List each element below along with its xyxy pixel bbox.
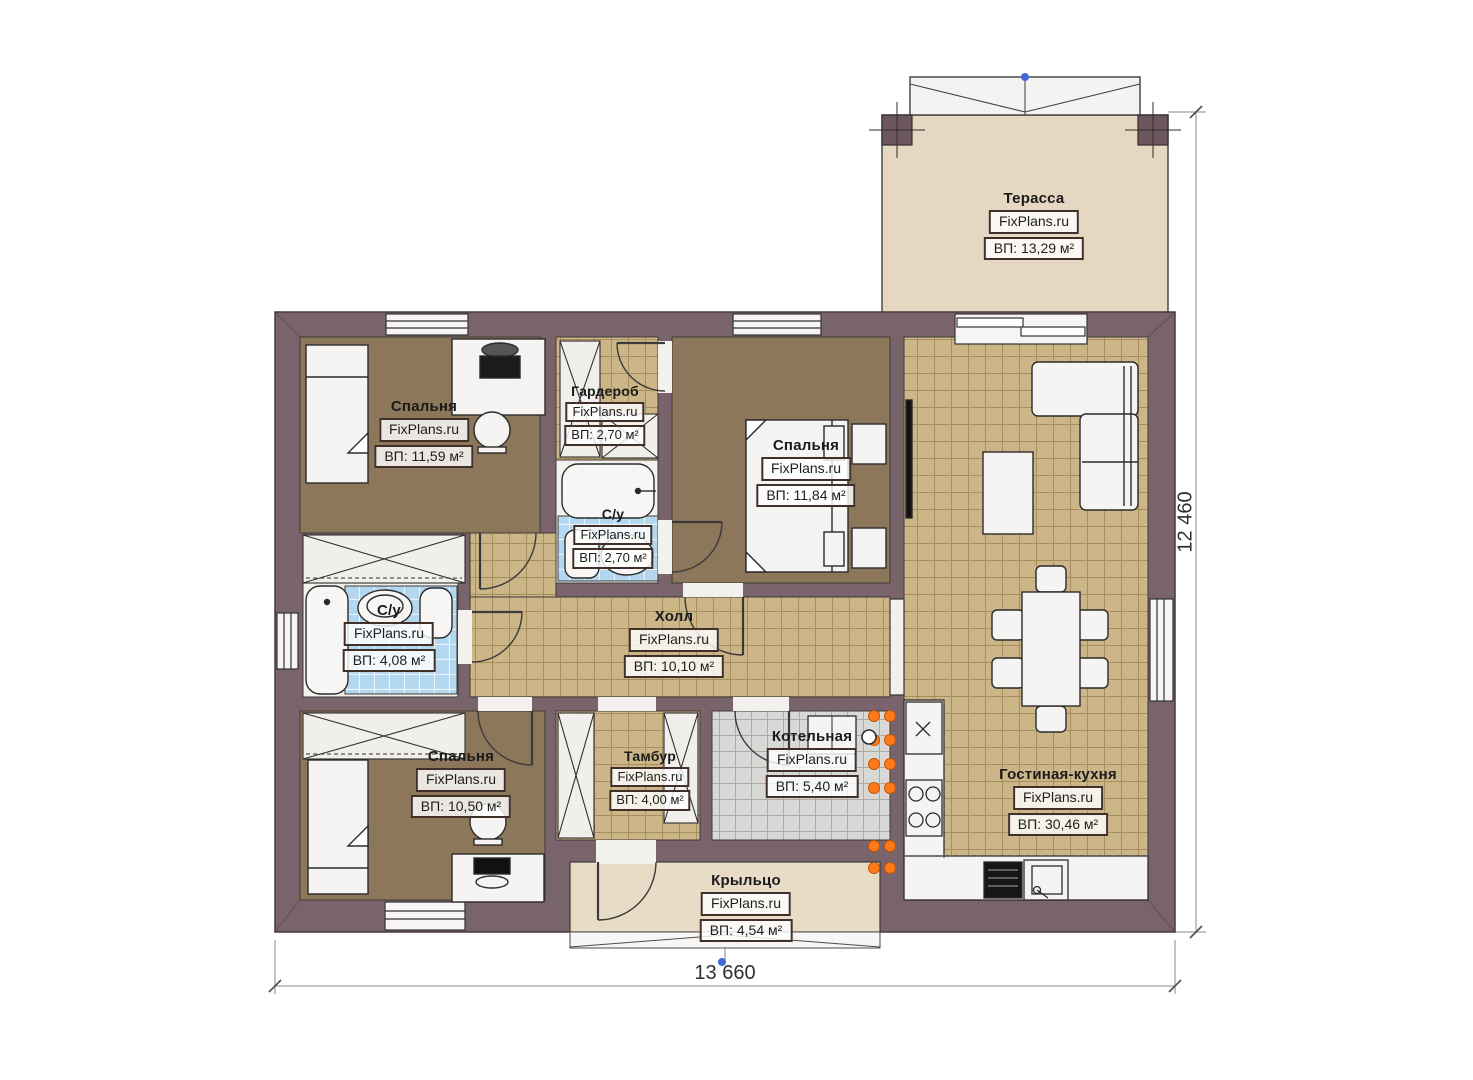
bed-bl <box>308 760 368 894</box>
sink-left-basin <box>367 595 403 617</box>
closet-tambour-right <box>664 713 698 823</box>
window-right <box>1150 599 1173 701</box>
terrace-structure <box>869 73 1181 315</box>
closet-bedroom-tl <box>303 535 465 583</box>
stove <box>906 780 942 836</box>
hall-floor <box>470 597 890 697</box>
dining-chair <box>992 658 1024 688</box>
terrace-sliding-door <box>955 314 1087 344</box>
closet-bedroom-bl <box>303 713 465 759</box>
closet-wardrobe-small <box>602 414 658 458</box>
hall-connector-floor <box>470 533 556 597</box>
dimension-width: 13 660 <box>694 962 755 985</box>
toilet-small <box>565 530 599 578</box>
closet-tambour-left <box>558 713 594 838</box>
coffee-table <box>983 452 1033 534</box>
window-top-1 <box>386 314 468 335</box>
window-top-2 <box>733 314 821 335</box>
nightstand <box>852 424 886 464</box>
dining-chair <box>1036 566 1066 592</box>
terrace-railing <box>910 73 1140 115</box>
tv <box>906 400 912 518</box>
bed-tl <box>306 345 368 483</box>
porch-structure <box>570 862 880 948</box>
hall-living-opening <box>890 599 904 695</box>
toilet-left <box>420 588 452 638</box>
dining-chair <box>1076 658 1108 688</box>
chair-bl <box>470 804 506 845</box>
dimension-height: 12 460 <box>1175 491 1198 552</box>
grip-point <box>1021 73 1029 81</box>
floor-plan: Терасса FixPlans.ru ВП: 13,29 м² Спальня… <box>0 0 1473 1080</box>
chair-tl <box>474 412 510 453</box>
fridge <box>906 702 942 754</box>
dining-chair <box>1036 706 1066 732</box>
window-left <box>277 613 298 669</box>
floor-plan-drawing <box>0 0 1473 1080</box>
sink-small <box>601 535 653 575</box>
bathtub-small <box>562 464 656 518</box>
desk-bl <box>452 854 544 902</box>
dining-chair <box>992 610 1024 640</box>
nightstand <box>852 528 886 568</box>
dining-chair <box>1076 610 1108 640</box>
boiler-icon <box>862 730 876 744</box>
bathtub-left <box>306 586 348 694</box>
kitchen-sink <box>1024 860 1068 900</box>
closet-wardrobe-tall <box>560 341 600 457</box>
dishwasher <box>984 862 1022 898</box>
tambour-opening <box>598 697 656 711</box>
dining-table <box>1022 592 1080 706</box>
desk-tl <box>452 339 545 415</box>
window-bottom <box>385 902 465 930</box>
porch-steps <box>570 932 880 948</box>
